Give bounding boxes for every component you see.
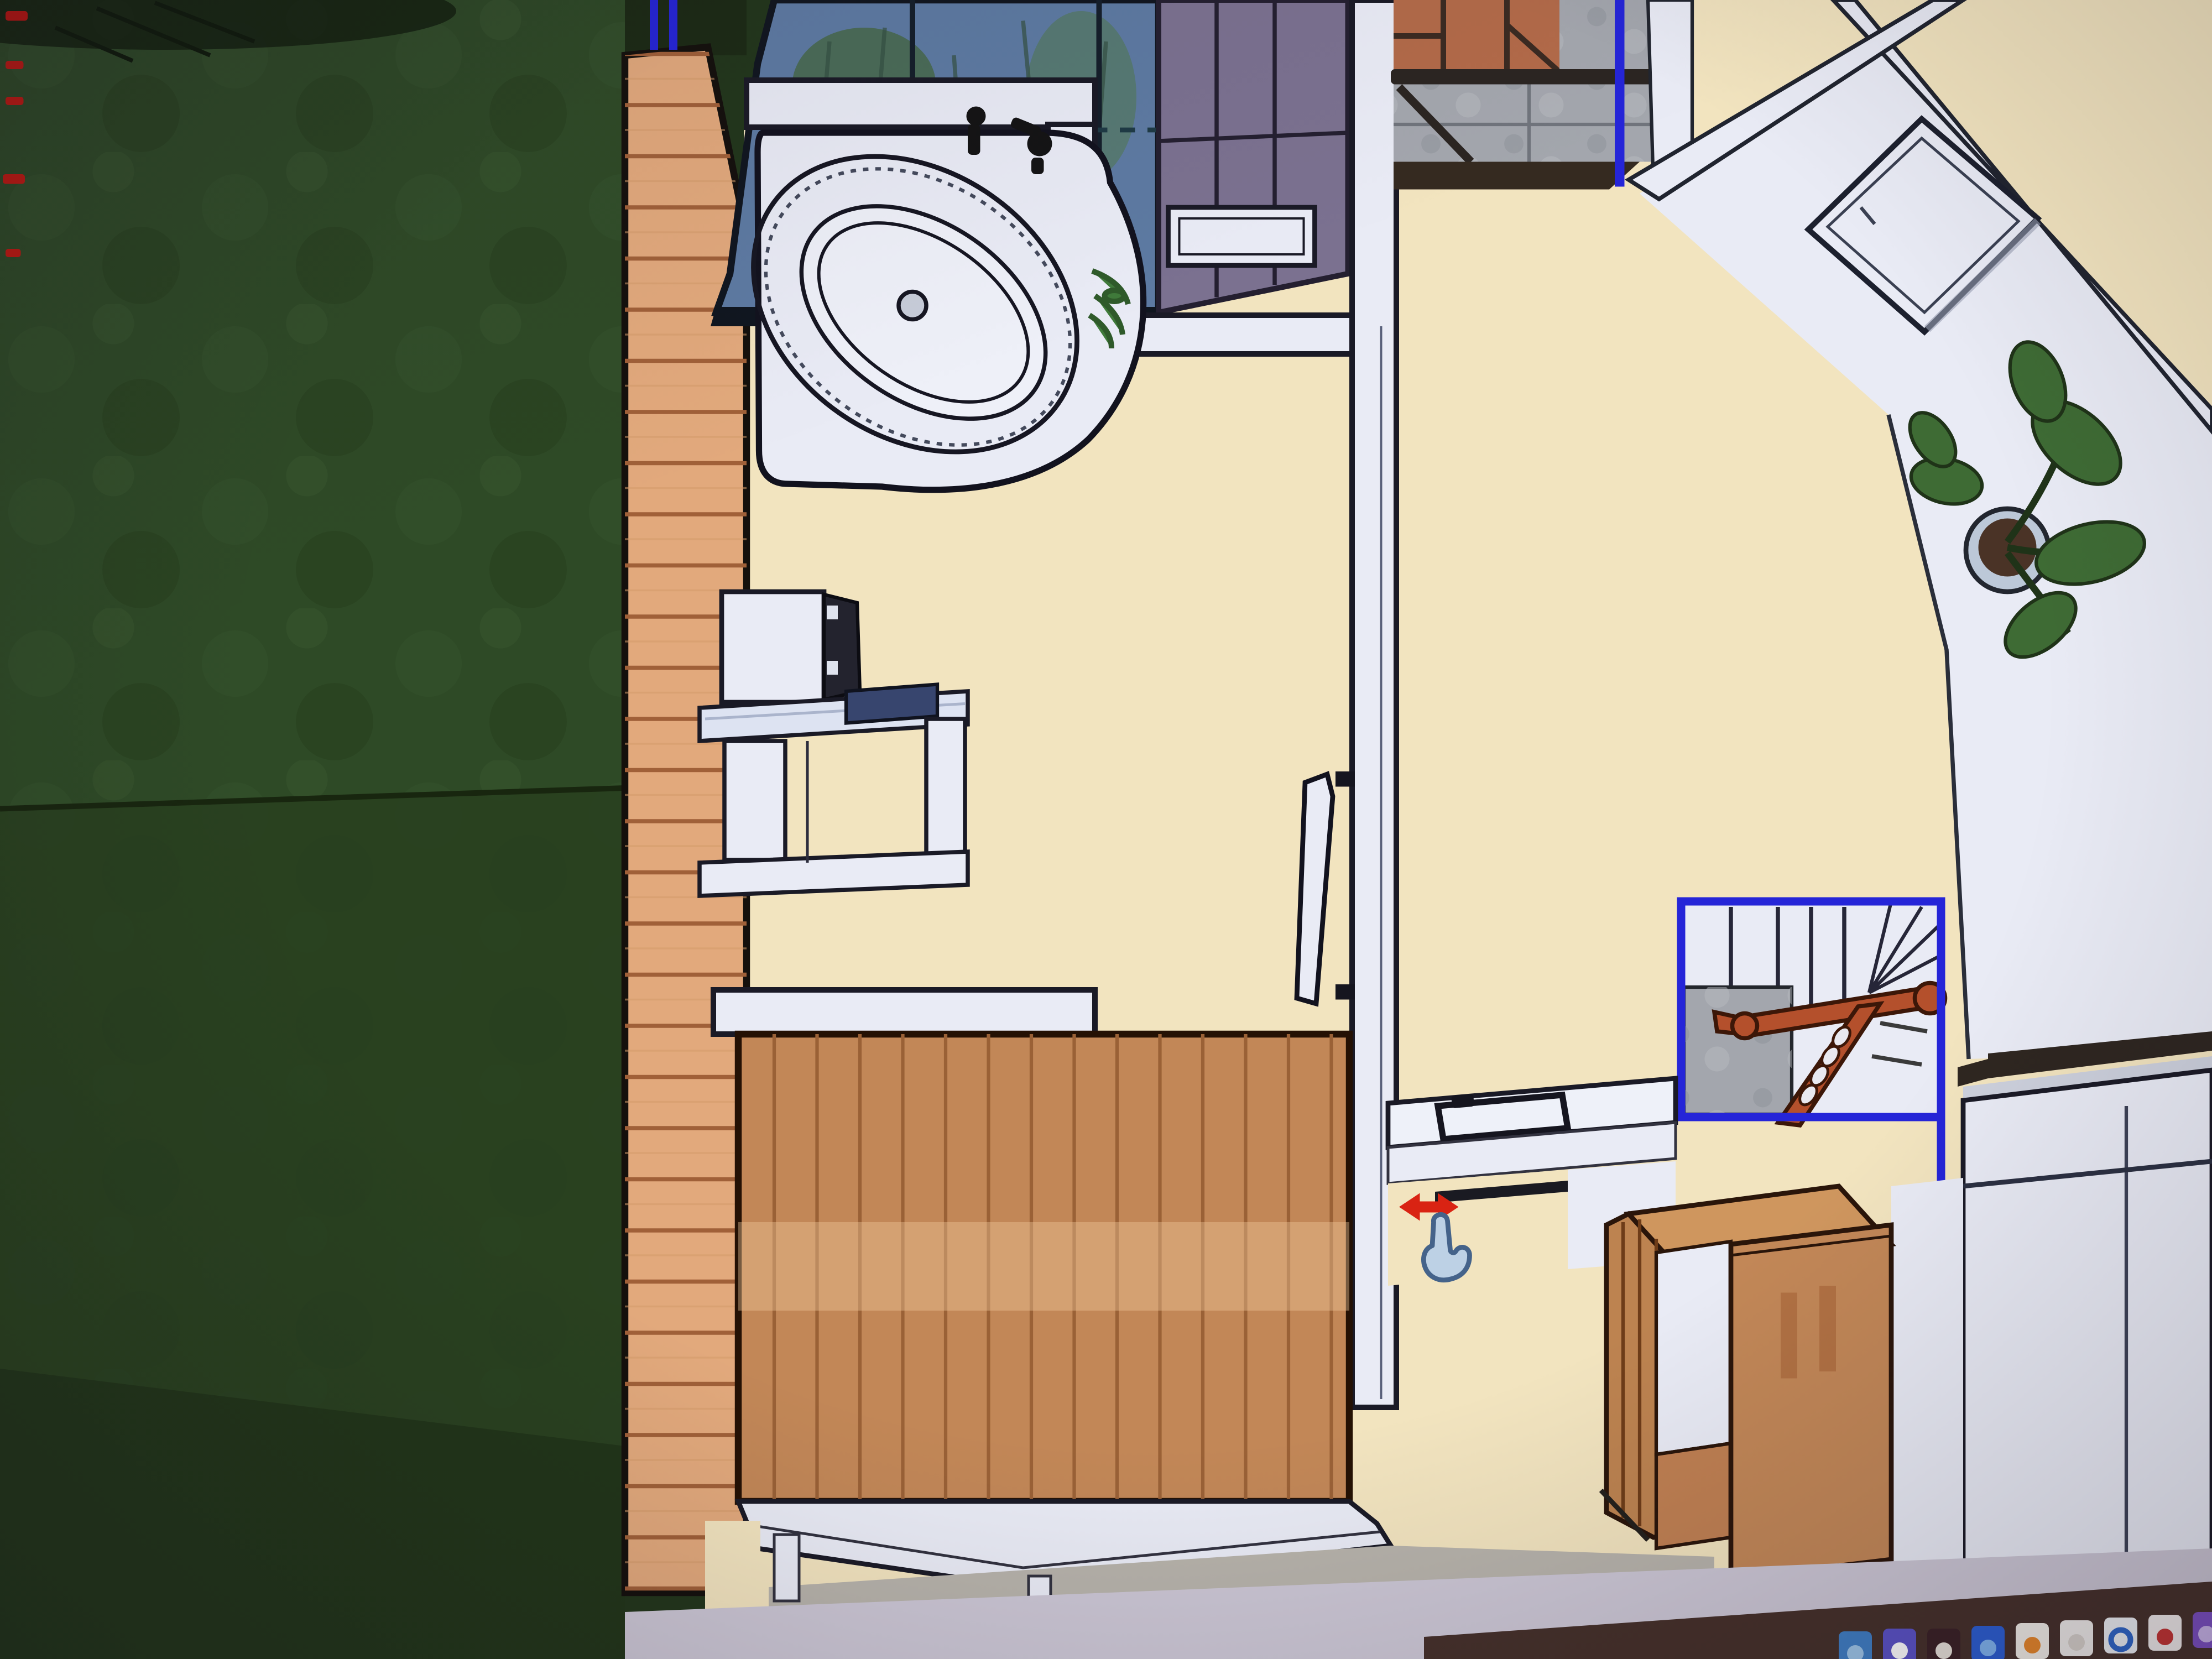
floor-plan-canvas[interactable] [0, 0, 2212, 1659]
taskbar-icon[interactable] [2016, 1623, 2049, 1659]
taskbar-icon[interactable] [1971, 1626, 2005, 1659]
taskbar-icon[interactable] [2104, 1618, 2137, 1653]
closet-top-ledge [713, 990, 1095, 1034]
taskbar-icon[interactable] [2148, 1615, 2182, 1651]
photographed-monitor-screen [0, 0, 2212, 1659]
selected-wall-edge [1615, 0, 1625, 187]
plinth-post [774, 1535, 799, 1601]
bath-north-wall[interactable] [747, 80, 1095, 127]
roof-window[interactable] [1168, 207, 1315, 265]
wooden-wardrobe[interactable] [1606, 1186, 1891, 1579]
tall-kitchen-unit[interactable] [1958, 1031, 2212, 1587]
selection-edge-line [669, 0, 677, 50]
wood-paneled-closet[interactable] [713, 990, 1349, 1501]
selection-edge-line [650, 0, 658, 50]
corner-bathtub[interactable] [696, 96, 1143, 513]
balcony-edge [1394, 162, 1640, 190]
taskbar-icon[interactable] [2060, 1620, 2093, 1656]
taskbar-icon[interactable] [1883, 1629, 1916, 1659]
taskbar-icon[interactable] [1839, 1631, 1872, 1659]
dark-glass-top [846, 685, 937, 723]
wardrobe-opening [1656, 1241, 1731, 1454]
balcony-railing[interactable] [1391, 69, 1687, 85]
light-plank-band [738, 1222, 1349, 1311]
bath-drain [899, 292, 926, 320]
entry-balcony[interactable] [1391, 0, 1692, 190]
taskbar-icon[interactable] [1927, 1629, 1960, 1659]
tray-handle [1451, 1094, 1474, 1108]
taskbar-icon[interactable] [2193, 1612, 2212, 1648]
wardrobe-front [1731, 1225, 1891, 1579]
